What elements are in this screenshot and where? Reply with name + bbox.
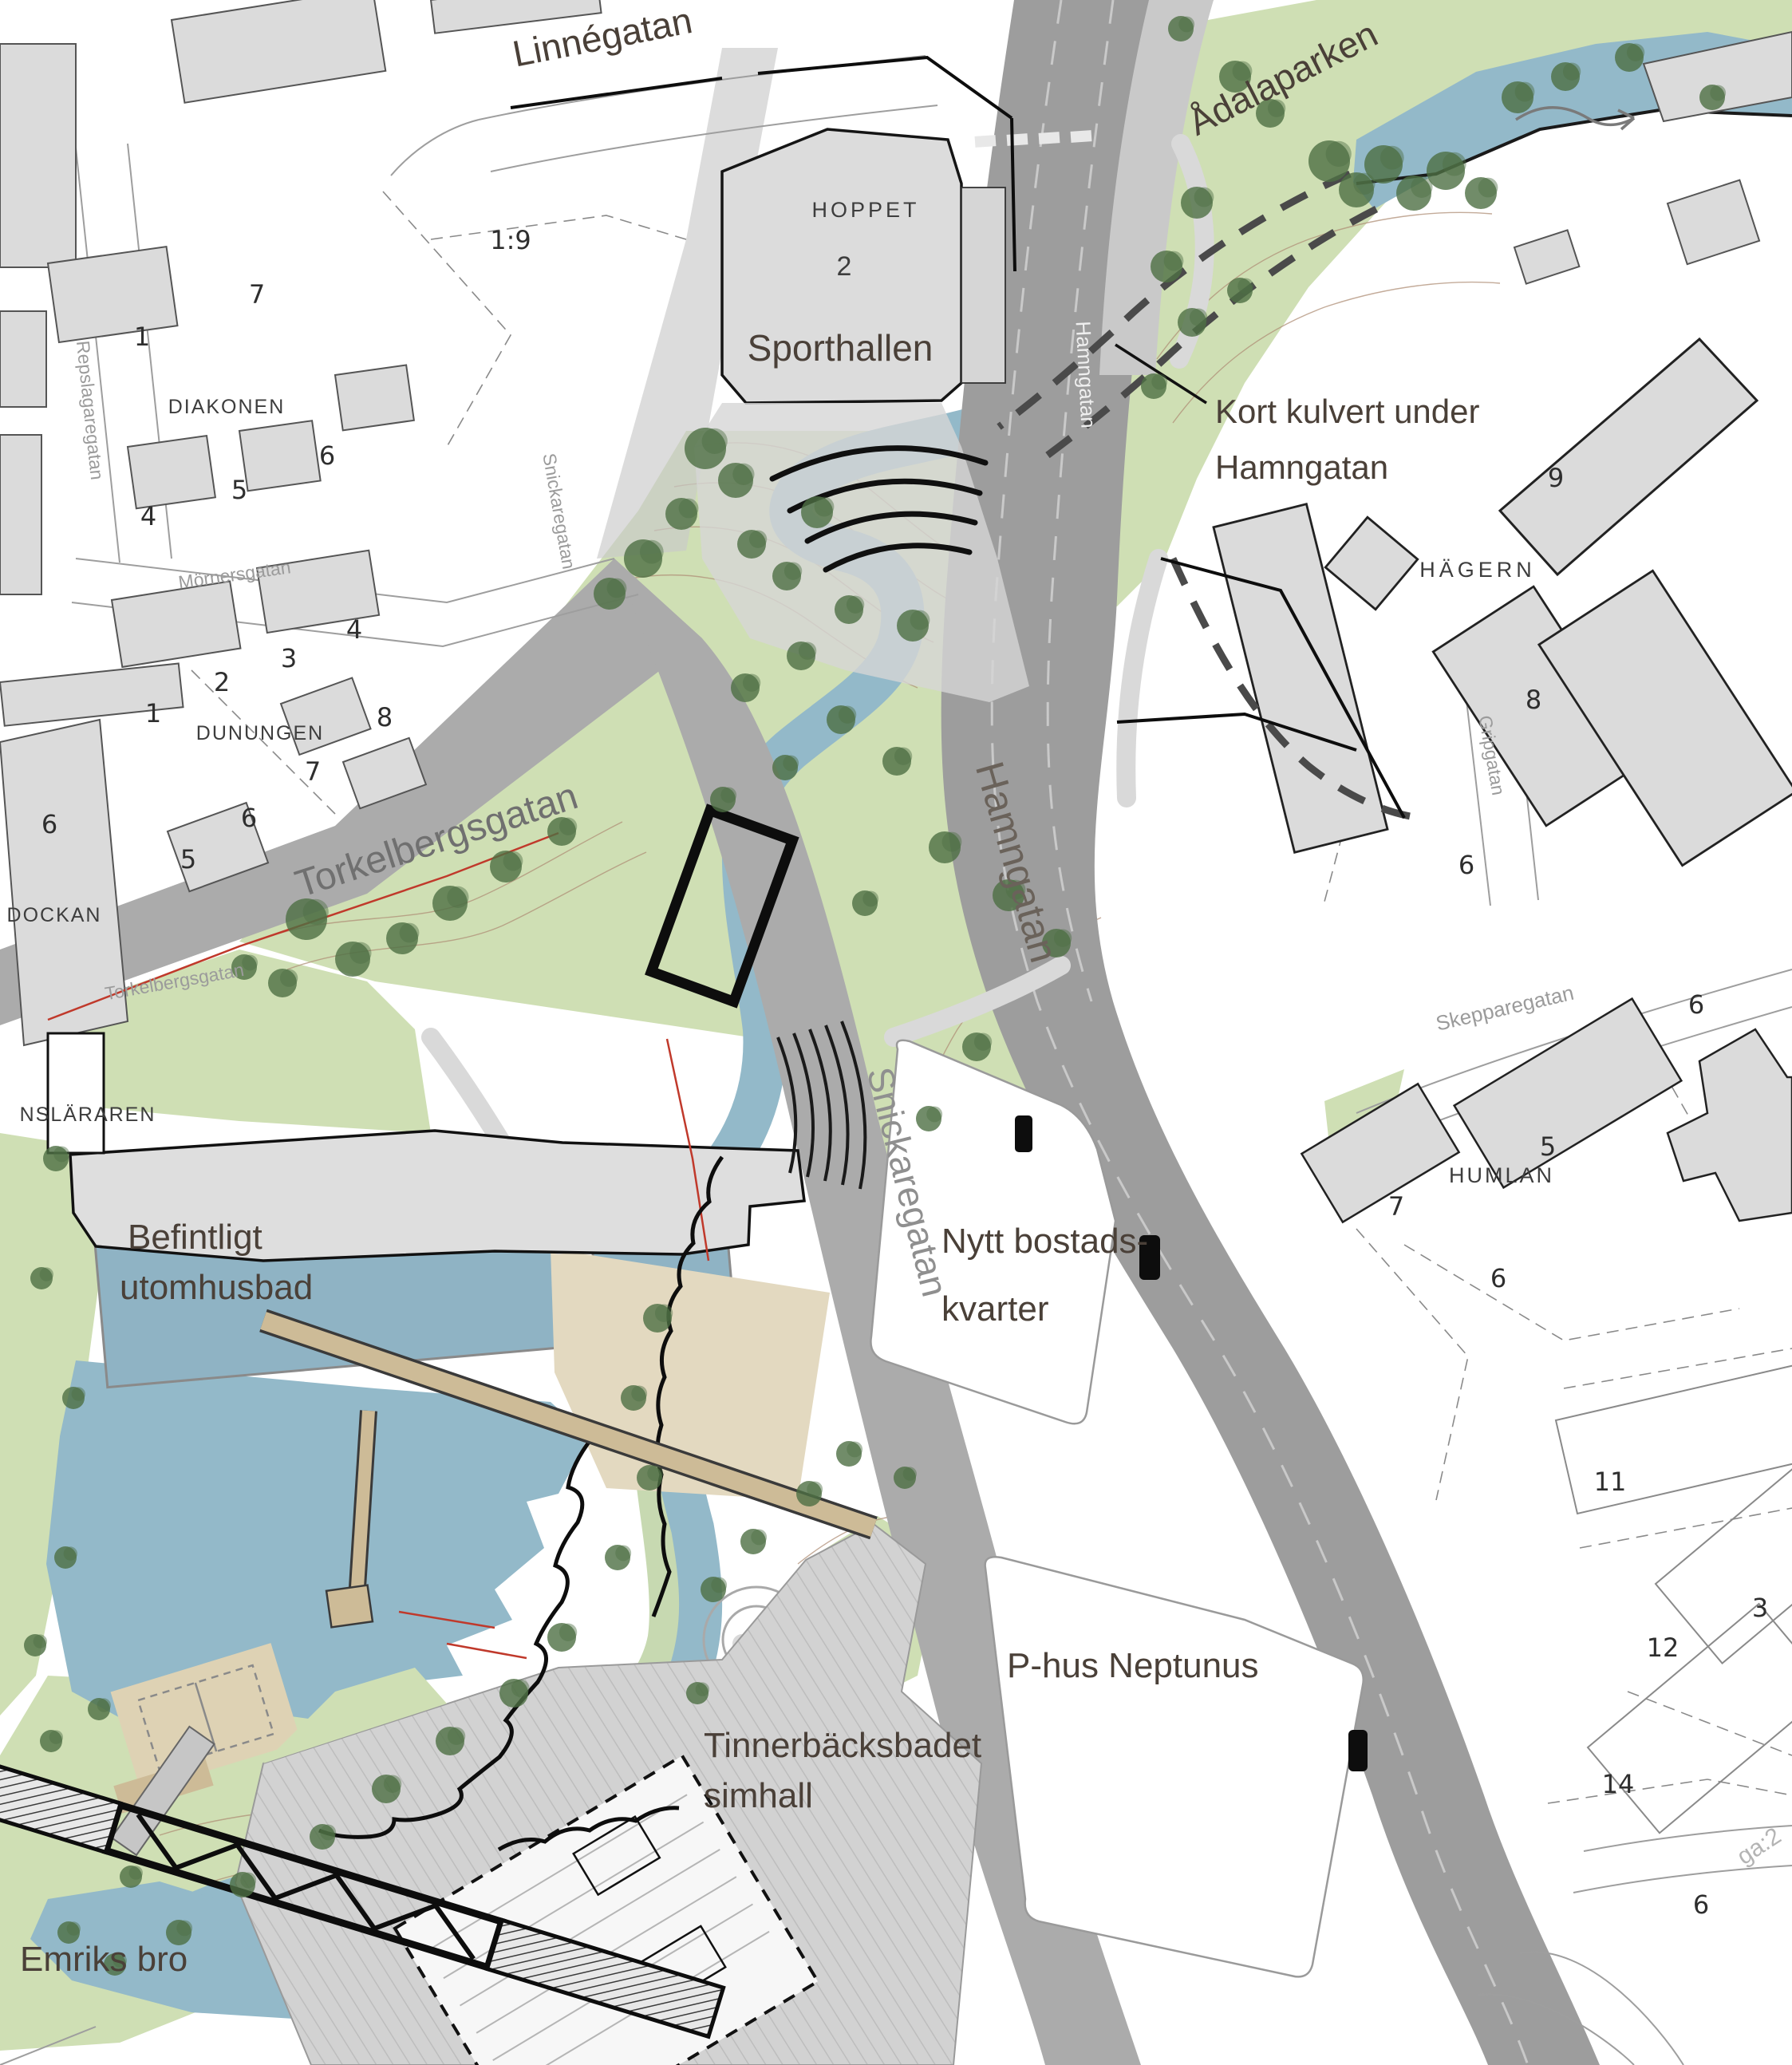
- label-dockan: DOCKAN: [7, 904, 102, 926]
- parcel-number: 8: [1526, 685, 1541, 715]
- parcel-number: 3: [281, 643, 297, 673]
- tree-icon: [732, 464, 754, 485]
- label-dunungen: DUNUNGEN: [196, 722, 324, 744]
- tree-icon: [974, 1033, 992, 1051]
- parcel-number: 4: [140, 501, 156, 531]
- label-tinner-1: Tinnerbäcksbadet: [704, 1726, 981, 1765]
- tree-icon: [1326, 141, 1352, 167]
- label-nslararen: NSLÄRAREN: [20, 1104, 156, 1126]
- parcel-number: 12: [1647, 1633, 1680, 1663]
- tree-icon: [240, 1872, 256, 1888]
- tree-icon: [448, 1727, 465, 1745]
- tree-icon: [242, 954, 258, 970]
- label-hagern: HÄGERN: [1419, 558, 1536, 582]
- tree-icon: [862, 890, 878, 906]
- tree-icon: [49, 1730, 63, 1743]
- tree-icon: [815, 497, 835, 517]
- tree-icon: [847, 1441, 862, 1457]
- tree-icon: [799, 642, 816, 660]
- label-hoppet: HOPPET: [811, 198, 919, 222]
- tree-icon: [559, 1624, 577, 1641]
- label-diakonen: DIAKONEN: [168, 396, 286, 418]
- tree-icon: [942, 832, 962, 852]
- tree-icon: [926, 1106, 942, 1122]
- tree-icon: [607, 578, 627, 598]
- parcel-number: 6: [1693, 1889, 1709, 1920]
- tree-icon: [640, 540, 664, 564]
- label-befintligt-1: Befintligt: [128, 1218, 262, 1257]
- parcel-number: 5: [1540, 1131, 1556, 1162]
- label-kulvert-line1: Kort kulvert under: [1215, 393, 1480, 430]
- parcel-number: 1:9: [490, 225, 531, 255]
- tree-icon: [1443, 152, 1466, 176]
- parcel-number: 14: [1602, 1769, 1635, 1799]
- parcel-number: 5: [231, 475, 247, 505]
- parcel-number: 6: [41, 809, 57, 839]
- tree-icon: [511, 1680, 529, 1697]
- tree-icon: [749, 531, 767, 548]
- parcel-number: 7: [305, 756, 321, 787]
- tree-icon: [847, 596, 864, 614]
- tree-icon: [1190, 309, 1207, 326]
- bus-stop: [1348, 1730, 1368, 1771]
- tree-icon: [1515, 82, 1535, 102]
- tree-icon: [679, 499, 699, 519]
- parcel-number: 11: [1594, 1467, 1627, 1497]
- tree-icon: [447, 886, 468, 908]
- tree-icon: [1194, 188, 1214, 207]
- tree-icon: [655, 1305, 673, 1322]
- tree-icon: [67, 1921, 81, 1935]
- tree-icon: [839, 706, 856, 724]
- tree-icon: [910, 610, 930, 630]
- tree-icon: [176, 1920, 192, 1936]
- parcel-number: 4: [346, 614, 362, 645]
- parcel-number: 8: [377, 702, 393, 732]
- parcel-number: 6: [319, 440, 335, 471]
- parcel-number: 1: [145, 698, 161, 728]
- tree-icon: [53, 1146, 69, 1162]
- tree-icon: [720, 787, 736, 803]
- tree-icon: [280, 969, 298, 987]
- tree-icon: [807, 1481, 823, 1497]
- bus-stop: [1015, 1115, 1032, 1152]
- label-nytt-2: kvarter: [941, 1289, 1048, 1329]
- label-befintligt-2: utomhusbad: [120, 1268, 313, 1307]
- tree-icon: [1151, 373, 1167, 389]
- tree-icon: [1237, 278, 1253, 294]
- label-sporthallen: Sporthallen: [748, 327, 933, 369]
- tree-icon: [400, 923, 420, 943]
- tree-icon: [1178, 16, 1194, 32]
- label-humlan: HUMLAN: [1449, 1163, 1554, 1187]
- tree-icon: [1478, 178, 1498, 198]
- tree-icon: [64, 1546, 77, 1560]
- parcel-number: 6: [1458, 850, 1474, 880]
- label-kulvert-line2: Hamngatan: [1215, 448, 1388, 486]
- tree-icon: [784, 563, 802, 580]
- tree-icon: [1563, 63, 1581, 81]
- parcel-number: 7: [249, 279, 265, 310]
- tree-icon: [751, 1529, 767, 1545]
- tree-icon: [503, 851, 523, 871]
- tree-icon: [615, 1545, 631, 1561]
- tree-icon: [320, 1824, 336, 1840]
- tree-icon: [647, 1465, 663, 1481]
- label-tinner-2: simhall: [704, 1776, 813, 1815]
- parcel-number: 7: [1388, 1191, 1404, 1222]
- label-hoppet-2: 2: [837, 251, 852, 282]
- map-canvas: 174561:9123487656986576611312146 Linnéga…: [0, 0, 1792, 2065]
- tree-icon: [97, 1698, 111, 1712]
- tree-icon: [1710, 85, 1726, 101]
- tree-icon: [129, 1866, 143, 1879]
- tree-icon: [696, 1682, 709, 1696]
- parcel-number: 6: [241, 803, 257, 833]
- tree-icon: [903, 1467, 917, 1480]
- tree-icon: [1380, 146, 1404, 170]
- plan-map: 174561:9123487656986576611312146 Linnéga…: [0, 0, 1792, 2065]
- tree-icon: [702, 428, 728, 454]
- parcel-number: 5: [180, 844, 196, 875]
- label-nytt-1: Nytt bostads-: [941, 1222, 1148, 1261]
- parcel-number: 1: [134, 322, 150, 352]
- tree-icon: [72, 1387, 85, 1400]
- parcel-number: 6: [1688, 989, 1704, 1020]
- parcel-number: 9: [1548, 463, 1564, 493]
- tree-icon: [349, 942, 371, 964]
- tree-icon: [34, 1634, 47, 1648]
- tree-icon: [743, 674, 760, 692]
- tree-icon: [631, 1385, 647, 1401]
- parcel-number: 2: [214, 667, 230, 697]
- tree-icon: [40, 1267, 53, 1281]
- tree-icon: [783, 755, 799, 771]
- label-phus: P-hus Neptunus: [1007, 1646, 1259, 1685]
- tree-icon: [384, 1775, 401, 1793]
- tree-icon: [1164, 251, 1184, 271]
- parcel-number: 6: [1490, 1263, 1506, 1293]
- parcel-number: 3: [1752, 1593, 1768, 1623]
- tree-icon: [711, 1577, 727, 1593]
- tree-icon: [894, 748, 912, 765]
- label-emriks: Emriks bro: [20, 1940, 187, 1979]
- tree-icon: [1627, 44, 1644, 61]
